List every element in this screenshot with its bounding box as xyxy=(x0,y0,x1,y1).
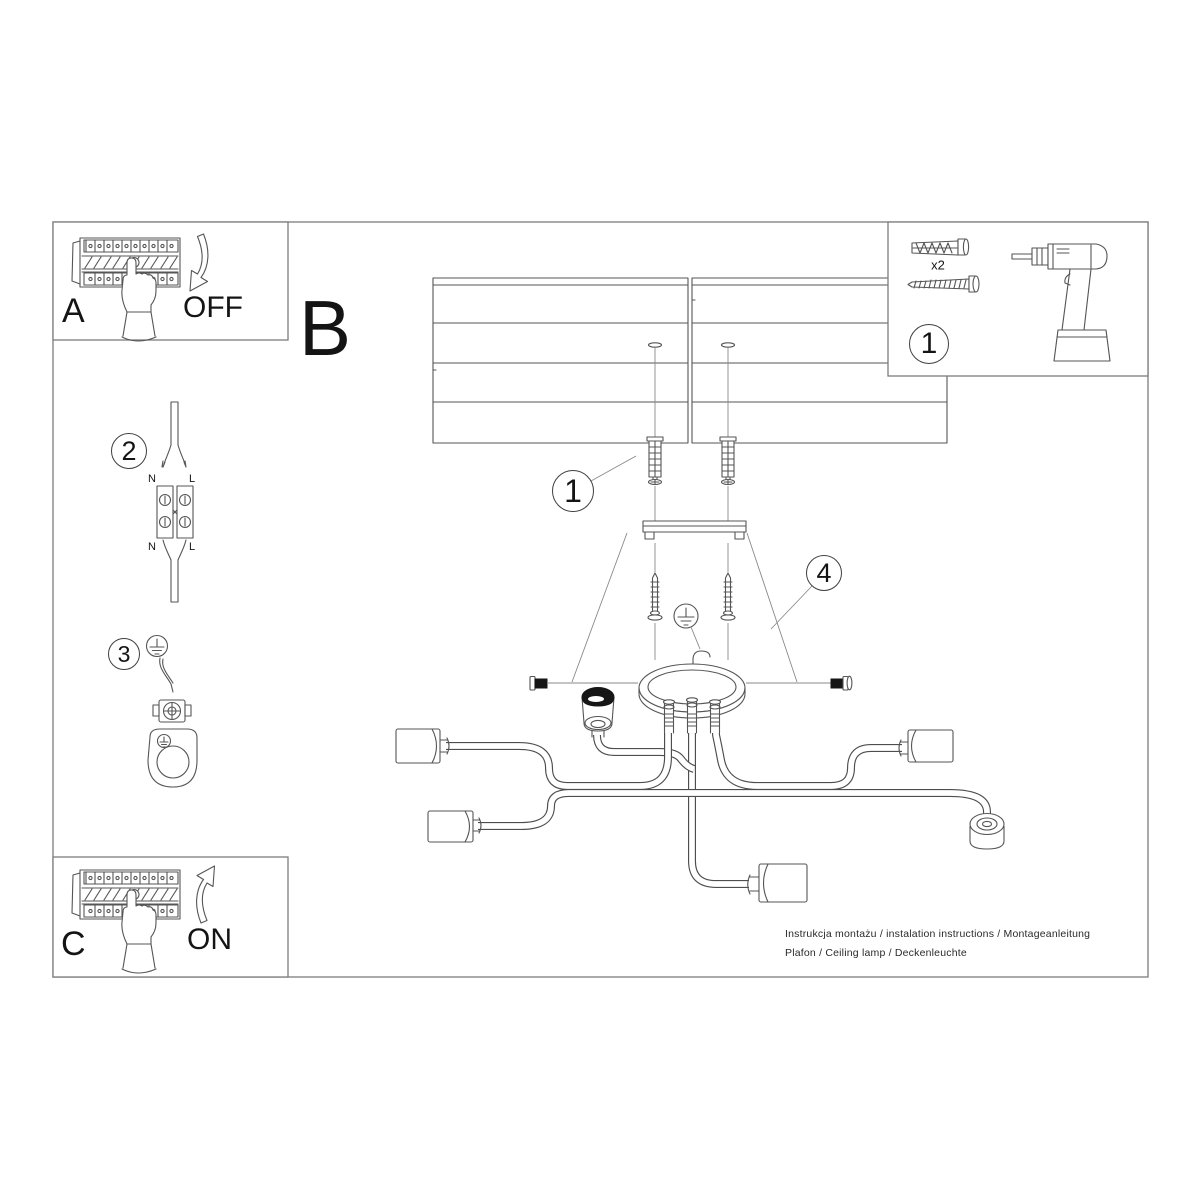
wire-label-n-bottom: N xyxy=(148,541,156,553)
callout-step-4: 4 xyxy=(806,555,842,591)
line-art xyxy=(0,0,1200,1200)
wire-label-n-top: N xyxy=(148,473,156,485)
callout-parts-1: 1 xyxy=(909,324,949,364)
switch-off-label: OFF xyxy=(183,291,243,325)
footer-subtitle: Plafon / Ceiling lamp / Deckenleuchte xyxy=(785,947,967,959)
footer-title: Instrukcja montażu / instalation instruc… xyxy=(785,928,1090,940)
terminal-block xyxy=(177,486,193,538)
section-b-label: B xyxy=(299,283,351,374)
callout-step-1: 1 xyxy=(552,470,594,512)
lamp-socket-bottom-right xyxy=(970,814,1004,850)
instruction-sheet: A OFF B C ON x2 N L N L 1 1 2 3 4 Instru… xyxy=(0,0,1200,1200)
section-a-label: A xyxy=(62,292,85,331)
lamp-socket-lower-left xyxy=(428,811,481,842)
canopy-nipples xyxy=(664,698,721,733)
section-c-label: C xyxy=(61,925,86,964)
wall-plug-collar xyxy=(647,437,663,441)
plug-count-label: x2 xyxy=(931,258,945,273)
wire-label-l-bottom: L xyxy=(189,541,195,553)
wire-label-l-top: L xyxy=(189,473,195,485)
switch-on-label: ON xyxy=(187,923,232,957)
callout-step-3: 3 xyxy=(108,638,140,670)
callout-step-2: 2 xyxy=(111,433,147,469)
terminal-block xyxy=(157,486,173,538)
